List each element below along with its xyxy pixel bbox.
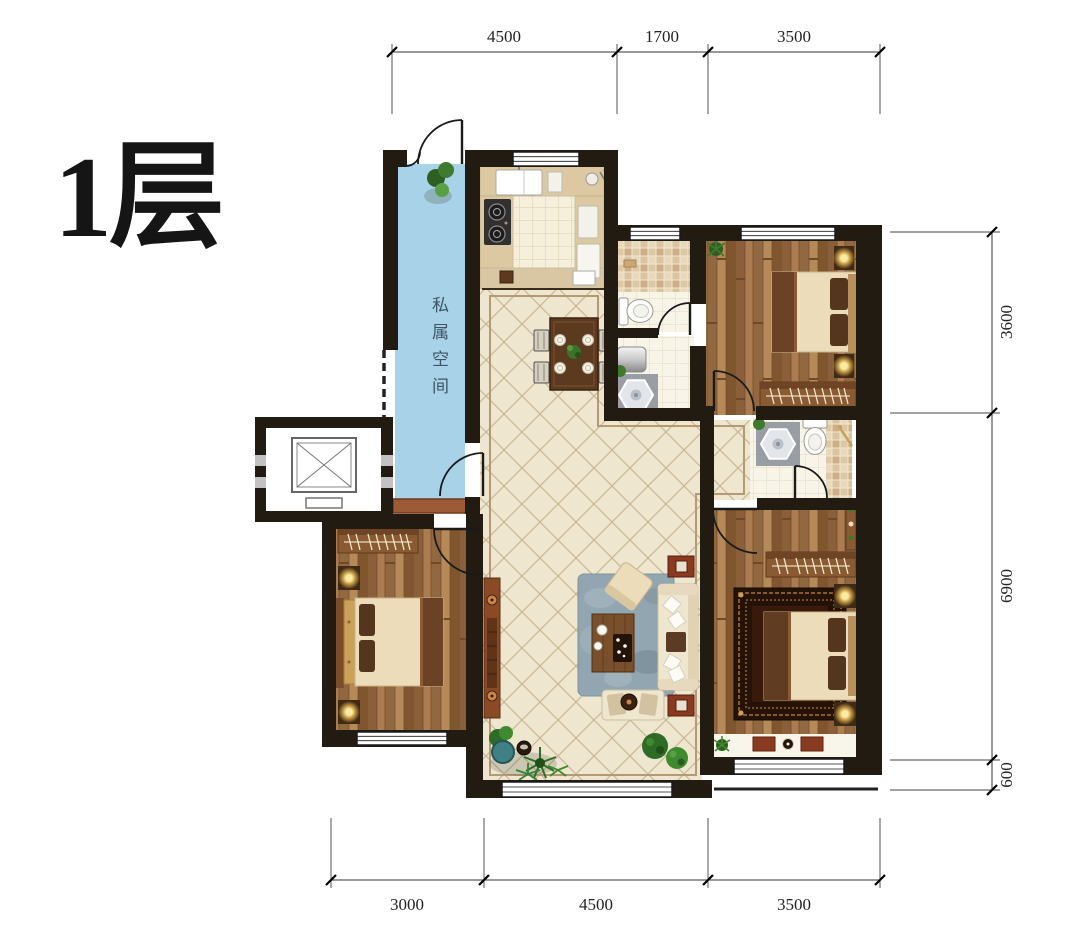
window-icon <box>502 782 672 797</box>
bonsai-pot-icon <box>492 741 514 763</box>
bed-icon <box>336 598 443 688</box>
dim-label-bottom-3: 3500 <box>777 895 811 914</box>
wardrobe-icon <box>760 382 856 407</box>
bowl-icon <box>586 173 598 185</box>
plant-icon <box>666 747 688 769</box>
window-icon <box>741 227 835 240</box>
pillow-icon <box>828 618 846 652</box>
sofa-icon <box>658 584 698 690</box>
private-space-label: 私属空间 <box>426 296 451 404</box>
mat-icon <box>753 737 775 751</box>
window-icon <box>357 732 447 745</box>
floor-plan-drawing: 4500 1700 3500 3600 6900 600 3000 4500 3… <box>0 0 1074 925</box>
pillow-icon <box>359 604 375 636</box>
shower-icon <box>761 429 795 458</box>
dim-label-top-2: 1700 <box>645 27 679 46</box>
dim-label-top-3: 3500 <box>777 27 811 46</box>
window-icon <box>734 759 844 774</box>
cutting-board-icon <box>548 172 562 192</box>
small-appliance-icon <box>573 271 595 285</box>
dining-chair-icon <box>534 330 549 351</box>
loveseat-icon <box>602 690 664 720</box>
pillow-icon <box>830 278 848 310</box>
dim-label-bottom-2: 4500 <box>579 895 613 914</box>
bed-icon <box>764 612 856 700</box>
dim-label-right-2: 6900 <box>997 569 1016 603</box>
dim-label-right-3: 600 <box>997 762 1016 788</box>
pillow-icon <box>830 314 848 346</box>
dining-chair-icon <box>534 362 549 383</box>
stove-icon <box>484 199 511 245</box>
bed-icon <box>772 272 856 352</box>
wardrobe-icon <box>766 552 856 577</box>
plant-icon <box>642 733 668 759</box>
sink-icon <box>496 170 542 195</box>
soap-tray-icon <box>624 260 636 267</box>
elevator-shaft <box>266 428 381 511</box>
coffee-table-icon <box>592 614 634 672</box>
pillow-icon <box>828 656 846 690</box>
mat-icon <box>801 737 823 751</box>
window-icon <box>630 227 680 240</box>
small-appliance-icon <box>500 271 513 283</box>
shower-icon <box>619 380 653 409</box>
elevator-counterweight-icon <box>306 498 342 508</box>
dimension-bottom: 3000 4500 3500 <box>326 818 885 914</box>
door-arc-icon <box>406 120 462 166</box>
dim-label-right-1: 3600 <box>997 305 1016 339</box>
dimension-top: 4500 1700 3500 <box>387 27 885 114</box>
pillow-icon <box>359 640 375 672</box>
toilet-icon <box>803 419 827 455</box>
dimension-right: 3600 6900 600 <box>890 227 1016 795</box>
bathroom2-mosaic <box>826 418 852 500</box>
wardrobe-icon <box>338 528 418 553</box>
tv-console-icon <box>484 578 500 718</box>
cushion-icon <box>666 632 686 652</box>
dim-label-top-1: 4500 <box>487 27 521 46</box>
window-icon <box>513 152 579 166</box>
counter-board-icon <box>578 206 598 238</box>
dim-label-bottom-1: 3000 <box>390 895 424 914</box>
floor-plan-page: 1层 <box>0 0 1074 925</box>
